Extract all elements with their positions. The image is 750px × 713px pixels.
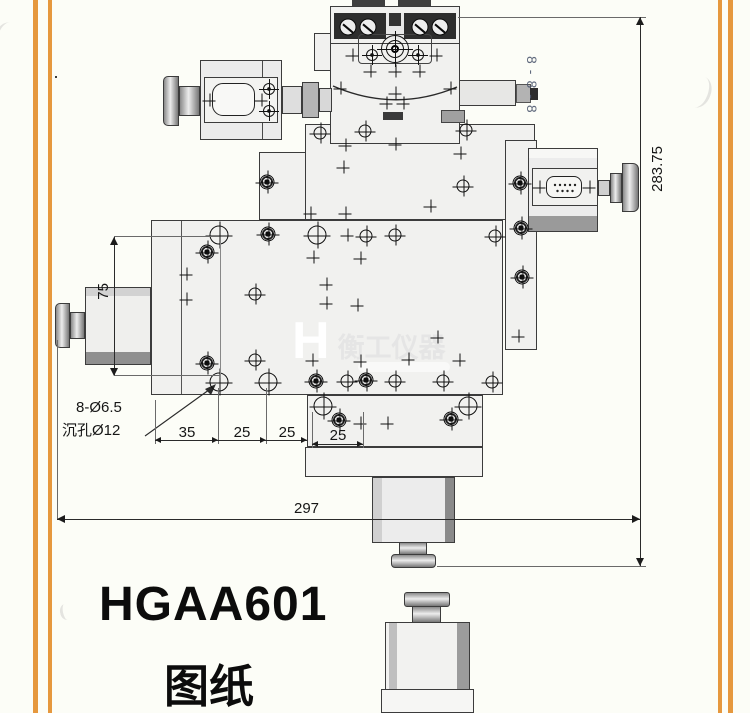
marker-cross — [203, 94, 216, 107]
detached-motor-strip-left — [389, 623, 397, 689]
right-motor-top-strip — [529, 149, 597, 158]
marker-cross — [351, 299, 364, 312]
dim-25b-label: 25 — [279, 424, 296, 441]
marker-cross — [380, 97, 393, 110]
marker-cc — [249, 354, 262, 367]
right-motor-bottom-strip — [529, 216, 597, 231]
main-plate-edge-line — [181, 221, 182, 394]
marker-screw — [513, 176, 528, 191]
marker-cross — [180, 268, 193, 281]
frame-left-outer — [33, 0, 38, 713]
right-knob-shaft — [598, 180, 610, 196]
hole-column-line — [220, 243, 221, 378]
marker-cc — [437, 375, 450, 388]
marker-ccb — [459, 397, 478, 416]
marker-cross — [341, 229, 354, 242]
vertical-watermark: 8-8-8 — [524, 56, 540, 119]
marker-sr — [412, 49, 424, 61]
marker-cross — [354, 252, 367, 265]
stage-bottom-lug — [383, 112, 403, 120]
ext-75-top — [114, 236, 219, 237]
left-motor-bottom-strip — [86, 352, 150, 364]
ext-chain-3 — [266, 388, 267, 444]
marker-cross — [334, 82, 347, 95]
chain-arrow-4 — [301, 437, 307, 443]
marker-screw — [309, 374, 324, 389]
marker-cross — [453, 354, 466, 367]
frame-right-inner — [718, 0, 722, 713]
dim-297-arrow-right — [632, 515, 640, 523]
marker-cross — [431, 331, 444, 344]
marker-cc — [457, 180, 470, 193]
marker-cross — [397, 97, 410, 110]
frame-right-outer — [728, 0, 733, 713]
chain2-arrow-left — [312, 441, 318, 447]
left-top-shaft-1 — [282, 86, 302, 114]
marker-cc — [389, 229, 402, 242]
dsub-pins — [547, 177, 583, 199]
model-title: HGAA601 — [99, 577, 327, 632]
chain-arrow-3 — [260, 437, 266, 443]
caption-title: 图纸 — [164, 650, 254, 713]
marker-ccb — [314, 397, 333, 416]
stage-left-tab — [314, 33, 331, 71]
marker-cross — [389, 65, 402, 78]
right-knob-cap — [622, 163, 639, 212]
dim-297-label: 297 — [294, 500, 319, 517]
marker-cross — [320, 278, 333, 291]
marker-cc — [249, 288, 262, 301]
dim-25c-label: 25 — [330, 427, 347, 444]
chain-arrow-1 — [155, 437, 161, 443]
marker-sr — [263, 105, 275, 117]
marker-cross — [180, 293, 193, 306]
marker-ccb — [259, 373, 278, 392]
marker-cross — [533, 181, 546, 194]
hole-note-line2: 沉孔Ø12 — [62, 419, 120, 440]
dim-chain2-line — [312, 444, 363, 445]
dim-297-line — [57, 519, 640, 520]
marker-cross — [255, 94, 268, 107]
marker-cross — [389, 138, 402, 151]
marker-cc — [314, 127, 327, 140]
bottom-motor-strip-right — [445, 478, 454, 542]
marker-screw — [514, 221, 529, 236]
marker-cross — [381, 417, 394, 430]
marker-cross — [583, 181, 596, 194]
chain2-arrow-right — [357, 441, 363, 447]
marker-ccb — [308, 226, 327, 245]
decoration-mark — [683, 73, 716, 111]
marker-cross — [320, 297, 333, 310]
marker-term — [340, 19, 357, 36]
detached-motor-strip-right — [457, 623, 469, 689]
marker-screw — [332, 413, 347, 428]
left-top-knob-stem — [179, 86, 200, 116]
marker-sr — [366, 49, 378, 61]
marker-cross — [306, 354, 319, 367]
marker-cc — [460, 124, 473, 137]
marker-screw — [260, 175, 275, 190]
marker-cc — [360, 230, 373, 243]
dim-75-arrow-top — [110, 237, 118, 245]
marker-screw — [444, 412, 459, 427]
detached-knob-cap — [404, 592, 450, 607]
bottom-knob-cap — [391, 554, 436, 568]
dim-75-arrow-bottom — [110, 368, 118, 376]
marker-cross — [346, 49, 359, 62]
decoration-mark — [0, 20, 20, 59]
marker-cross — [337, 161, 350, 174]
dim-283-line — [640, 17, 641, 566]
marker-term — [432, 19, 449, 36]
marker-term — [360, 19, 377, 36]
hole-note-line1: 8-Ø6.5 — [76, 399, 122, 416]
marker-cross — [413, 65, 426, 78]
marker-cross — [454, 147, 467, 160]
marker-cc — [389, 375, 402, 388]
marker-cross — [307, 251, 320, 264]
marker-cross — [430, 49, 443, 62]
dim-283-arrow-top — [636, 17, 644, 25]
right-knob-stem — [610, 173, 622, 203]
marker-cross — [402, 353, 415, 366]
left-top-knob-cap — [163, 76, 179, 126]
dim-35-label: 35 — [179, 424, 196, 441]
marker-cross — [424, 200, 437, 213]
marker-cross — [339, 139, 352, 152]
bottom-motor-body — [372, 477, 455, 543]
ext-chain2-2 — [363, 412, 364, 448]
bottom-motor-strip-left — [373, 478, 382, 542]
chain-arrow-2 — [212, 437, 218, 443]
ext-283-top — [458, 17, 646, 18]
dim-283-arrow-bottom — [636, 558, 644, 566]
base-strip — [305, 447, 483, 477]
marker-term — [412, 19, 429, 36]
marker-cc — [341, 375, 354, 388]
marker-cc — [486, 376, 499, 389]
ext-75-bottom — [114, 375, 221, 376]
marker-cc — [489, 230, 502, 243]
marker-screw — [200, 245, 215, 260]
ext-297-left — [57, 340, 58, 520]
frame-left-inner — [48, 0, 52, 713]
marker-screw — [359, 373, 374, 388]
drawing-page: H 衡工仪器 8-8-8 75 297 283.75 35 25 25 25 8… — [0, 0, 750, 713]
marker-cross — [304, 207, 317, 220]
terminal-center-tab — [389, 13, 401, 26]
marker-ccb — [210, 226, 229, 245]
dsub-cutout — [212, 83, 255, 116]
left-knob-stem — [70, 312, 85, 339]
marker-cross — [354, 417, 367, 430]
marker-cross — [444, 82, 457, 95]
dim-25a-label: 25 — [234, 424, 251, 441]
left-top-shaft-2 — [302, 82, 319, 118]
dim-75-line — [114, 237, 115, 375]
marker-cross — [339, 207, 352, 220]
dim-297-arrow-left — [57, 515, 65, 523]
spacer — [55, 76, 57, 78]
stage-side-lug — [441, 110, 465, 123]
marker-cross — [512, 330, 525, 343]
marker-cc — [359, 125, 372, 138]
marker-crossbig — [377, 31, 413, 67]
marker-cross — [354, 355, 367, 368]
dim-75-label: 75 — [95, 283, 112, 300]
dim-283-label: 283.75 — [649, 146, 666, 192]
ext-283-bottom — [437, 566, 646, 567]
stage-right-shaft — [458, 80, 516, 106]
marker-screw — [200, 356, 215, 371]
ext-chain-2 — [218, 388, 219, 444]
detached-motor-base — [381, 689, 474, 713]
marker-screw — [261, 227, 276, 242]
dsub-9pin — [546, 176, 582, 198]
marker-cross — [364, 65, 377, 78]
left-top-shaft-3 — [319, 88, 332, 112]
decoration-mark — [58, 603, 73, 621]
marker-screw — [515, 270, 530, 285]
detached-knob-stem — [412, 606, 441, 623]
